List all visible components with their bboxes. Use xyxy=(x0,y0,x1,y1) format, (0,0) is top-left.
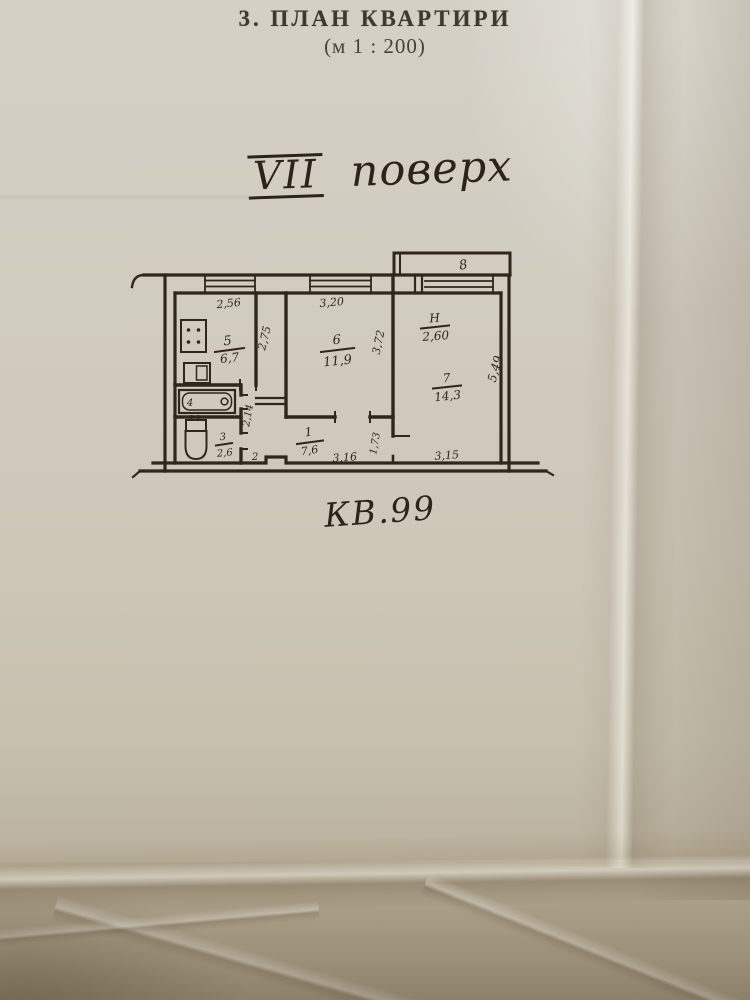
dim-living-depth: 3,72 xyxy=(370,329,388,356)
dim-hall-depth: 1,73 xyxy=(368,432,383,456)
dim-bedroom-width: 3,15 xyxy=(434,448,459,463)
sink-icon xyxy=(184,363,210,383)
room-hall-number: 1 xyxy=(304,425,314,440)
document-title: 3. ПЛАН КВАРТИРИ xyxy=(0,6,750,32)
stove-icon xyxy=(181,320,206,352)
dim-hall-left: 2,14 xyxy=(241,404,256,429)
height-mark-value: 2,60 xyxy=(421,328,450,344)
floor-plan-drawing: 2,56 5 6,7 2,75 3,20 6 11,9 3,72 Н 2,60 … xyxy=(128,243,558,501)
window-living xyxy=(310,275,371,293)
room-bedroom-number: 7 xyxy=(442,371,451,386)
faint-top-crease xyxy=(0,193,250,201)
dim-living-width: 3,20 xyxy=(319,295,345,310)
room-living-number: 6 xyxy=(332,333,341,349)
dim-kitchen-depth: 2,75 xyxy=(255,325,274,353)
room-wc-number: 3 xyxy=(219,432,226,444)
right-edge-shadow xyxy=(630,0,750,900)
height-mark-label: Н xyxy=(428,311,441,326)
window-kitchen xyxy=(205,275,255,293)
room-wc-area: 2,6 xyxy=(215,447,233,459)
diagonal-crease xyxy=(51,896,472,1000)
dim-kitchen-width: 2,56 xyxy=(215,296,242,312)
horizontal-fold-crease xyxy=(0,830,750,914)
bottom-shadow xyxy=(0,862,750,1000)
room-closet-number: 2 xyxy=(251,452,258,463)
room-hall-area: 7,6 xyxy=(300,443,319,458)
balcony-outline xyxy=(394,253,510,275)
room-bedroom-area: 14,3 xyxy=(434,388,462,405)
floor-roman-numeral: VII xyxy=(247,153,323,200)
door-jamb-marks xyxy=(240,380,409,449)
diagonal-crease xyxy=(421,873,745,1000)
room-kitchen-area: 6,7 xyxy=(219,350,240,366)
diagonal-crease xyxy=(0,901,320,948)
room-balcony-number: 8 xyxy=(458,257,469,273)
document-scale-note: (м 1 : 200) xyxy=(0,34,750,59)
apartment-number-note: КВ.99 xyxy=(323,488,438,535)
room-living-area: 11,9 xyxy=(322,353,352,371)
room-kitchen-number: 5 xyxy=(223,334,233,350)
window-balcony-door xyxy=(415,275,493,293)
floor-note: VII поверх xyxy=(247,141,513,200)
toilet-icon xyxy=(186,416,207,459)
dim-hall-width: 3,16 xyxy=(332,450,357,465)
photographed-document: 3. ПЛАН КВАРТИРИ (м 1 : 200) VII поверх xyxy=(0,0,750,1000)
room-bath-number: 4 xyxy=(186,398,193,409)
floor-word: поверх xyxy=(350,141,513,197)
bottom-left-corner-shadow xyxy=(0,870,270,1000)
vertical-fold-crease xyxy=(577,0,685,869)
